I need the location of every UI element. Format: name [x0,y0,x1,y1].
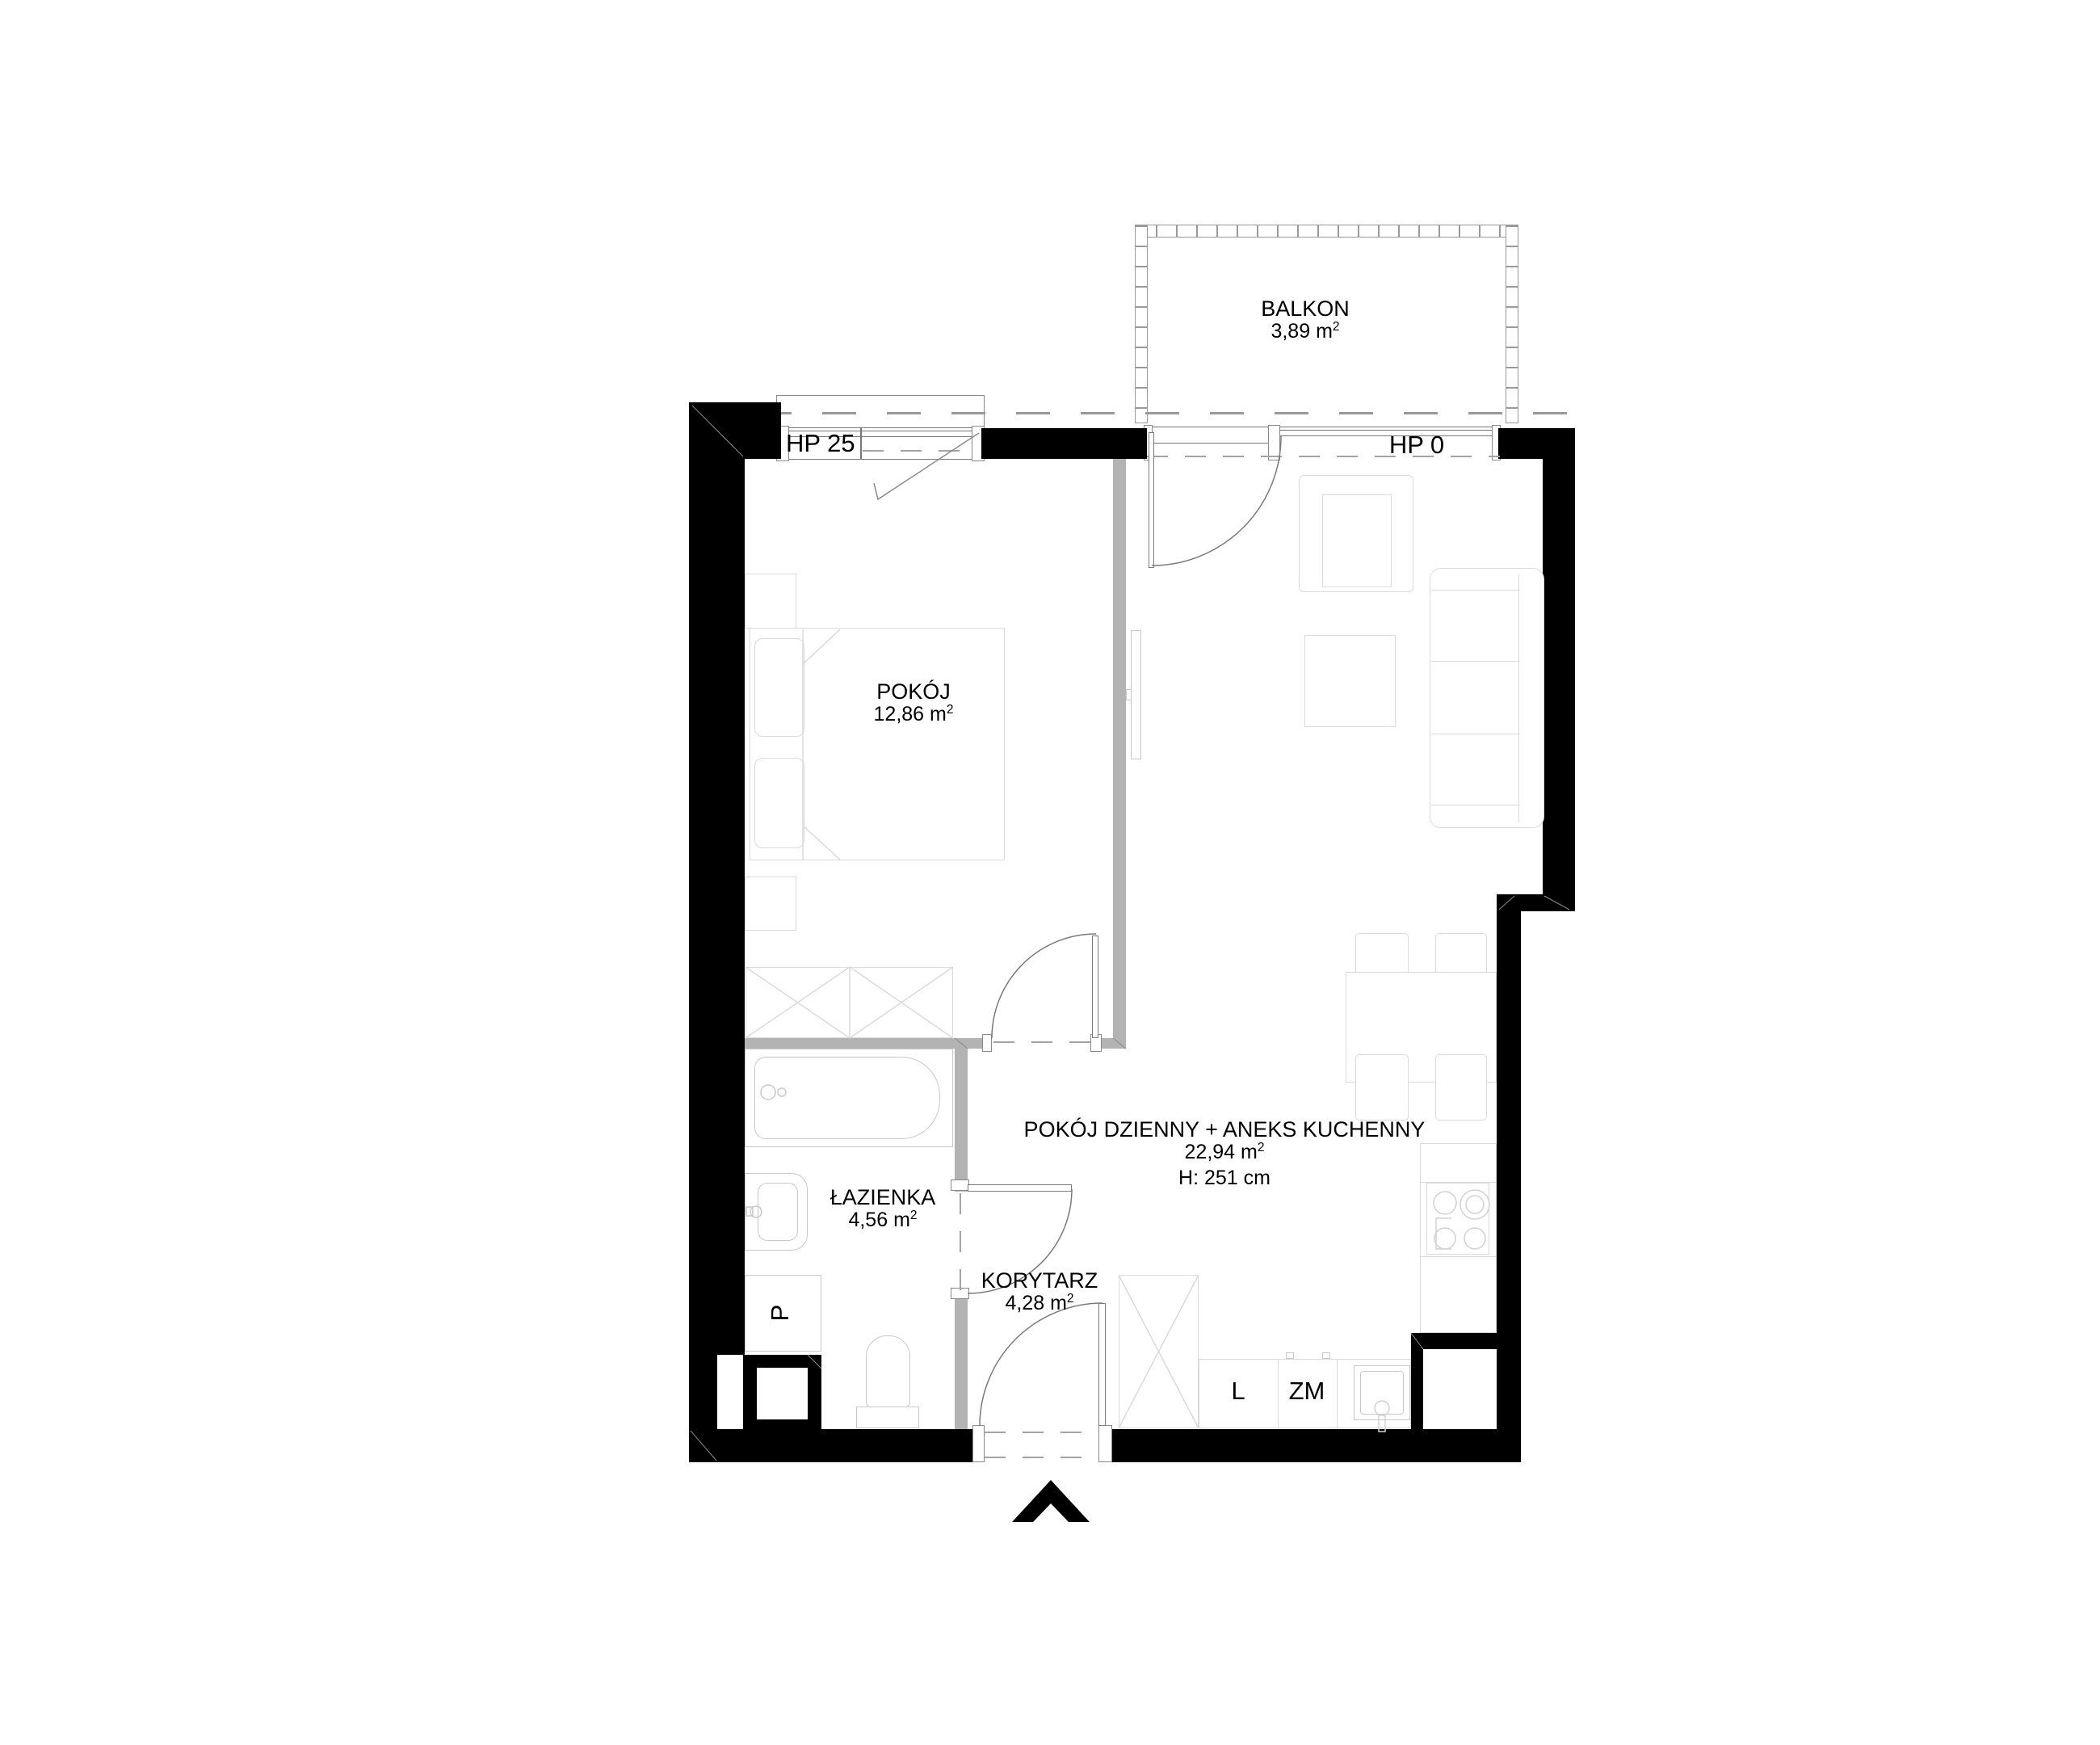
bathroom-door-threshold [960,1193,961,1290]
entrance-arrow-icon [1012,1480,1090,1522]
floor-plan: BALKON 3,89 m2 POKÓJ 12,86 m2 POKÓJ DZIE… [0,0,2100,1745]
kitchen-sink-basin [1360,1371,1404,1415]
armchair-seat [1322,494,1392,587]
partition-bedroom-living [1113,459,1126,1038]
balcony-railing-right [1506,225,1518,423]
wall-top-pier [981,428,1147,459]
wall-right-upper [1543,428,1575,911]
balcony-railing-top [1135,225,1518,238]
lazienka-name: ŁAZIENKA [830,1186,936,1209]
fridge-label: L [1231,1380,1245,1402]
window-hp0-dashed [1147,456,1500,457]
entrance-door-jamb-right [1098,1425,1112,1462]
washbasin-bowl [758,1183,798,1241]
sofa [1430,568,1544,828]
entrance-threshold-outer [985,1432,1098,1433]
sofa-back-line [1518,574,1519,822]
entrance-door-jamb-left [972,1425,985,1462]
balkon-area: 3,89 m2 [1261,320,1350,346]
pokoj-name: POKÓJ [874,680,954,703]
fridge-divider [1278,1359,1279,1428]
dishwasher-knob-1 [1286,1352,1294,1359]
wardrobe-bedroom [745,967,953,1038]
balcony-slab-dashed-line [693,412,1575,414]
bedroom-door-threshold [993,1041,1095,1043]
korytarz-label: KORYTARZ 4,28 m2 [981,1269,1098,1318]
pokoj-area: 12,86 m2 [874,703,954,729]
window-hp25-mullion [860,427,862,460]
balcony-door-frame [1150,427,1275,444]
balkon-name: BALKON [1261,297,1350,320]
dining-chair-4 [1435,1054,1487,1121]
window-hp0-label: HP 0 [1389,434,1444,456]
toilet-tank [856,1407,919,1428]
toilet-bowl [866,1335,910,1408]
lazienka-label: ŁAZIENKA 4,56 m2 [830,1186,936,1234]
wall-bottom-left [689,1429,972,1462]
sofa-armrest-top-line [1431,590,1520,591]
bedroom-door-jamb-left [982,1034,992,1052]
korytarz-name: KORYTARZ [981,1269,1098,1292]
bedroom-door-arc [992,934,1096,1038]
pokoj-label: POKÓJ 12,86 m2 [874,680,954,729]
living-room-label: POKÓJ DZIENNY + ANEKS KUCHENNY 22,94 m2 … [1024,1118,1426,1189]
partition-bathroom-top-left [745,1038,992,1049]
balcony-door-leaf [1149,432,1154,568]
korytarz-area: 4,28 m2 [981,1292,1098,1318]
bedroom-door-leaf [1092,936,1098,1038]
coffee-table [1304,635,1396,727]
plan-linework [0,0,2100,1745]
sofa-armrest-bottom-line [1431,805,1520,805]
bed-pillow-1 [754,638,804,737]
dishwasher-knob-2 [1322,1352,1330,1359]
window-hp25-dashed [863,450,976,452]
nightstand-top [745,574,796,629]
wall-bottom-right [1112,1429,1521,1462]
partition-bathroom-corridor-upper [955,1049,968,1192]
cooktop [1426,1183,1489,1255]
balkon-label: BALKON 3,89 m2 [1261,297,1350,346]
bed-pillow-2 [754,758,804,848]
nightstand-bottom [745,877,796,931]
living-room-name: POKÓJ DZIENNY + ANEKS KUCHENNY [1024,1118,1426,1141]
living-room-height: H: 251 cm [1024,1167,1426,1189]
dining-chair-3 [1355,1054,1409,1121]
wall-right-lower [1497,894,1521,1333]
sofa-cushion-line-2 [1431,734,1520,734]
entrance-threshold-inner [985,1457,1098,1458]
dishwasher-divider [1337,1359,1338,1428]
dishwasher-label: ZM [1289,1380,1325,1402]
balcony-railing-left [1135,225,1148,423]
kitchen-tall-cabinet [1119,1275,1199,1428]
lazienka-area: 4,56 m2 [830,1209,936,1234]
partition-bathroom-corridor-lower [955,1291,968,1429]
washer-label: P [769,1305,792,1322]
kitchen-counter-right-line-2 [1420,1256,1497,1257]
window-hp25-label: HP 25 [786,429,855,458]
sofa-cushion-line-1 [1431,661,1520,662]
entrance-door-leaf [1098,1303,1106,1426]
shaft-interior [757,1368,808,1419]
wall-left-upper [689,402,745,1355]
living-room-area: 22,94 m2 [1024,1141,1426,1167]
bathtub-basin [754,1057,940,1139]
tv-panel [1131,630,1141,759]
bathroom-door-jamb-top [951,1179,969,1191]
wall-niche-left [1411,1333,1423,1429]
entrance-door-arc [980,1303,1102,1426]
tv-mount [1126,689,1132,700]
wall-top-left-corner [689,402,781,459]
